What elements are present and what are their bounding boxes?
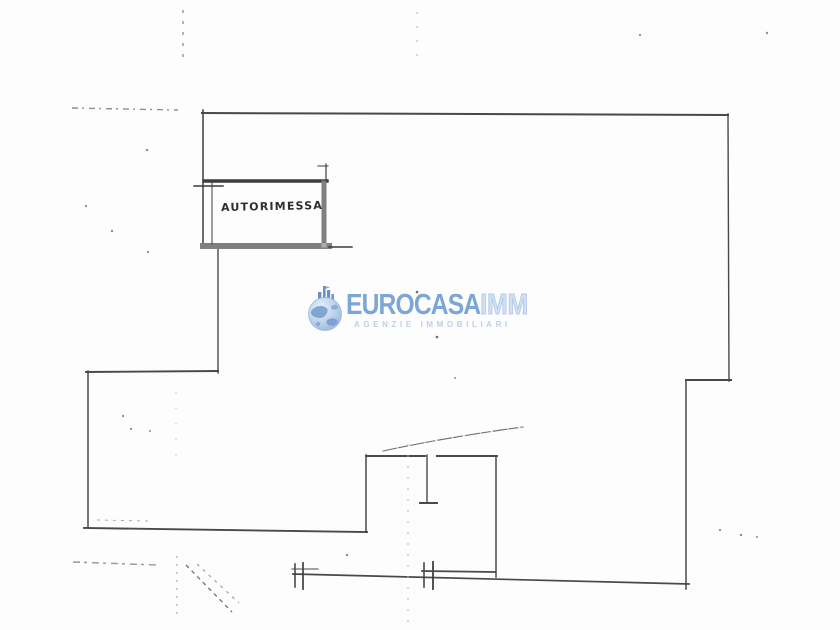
outer-boundary <box>84 110 731 589</box>
brand-text: EUROCASAIMM <box>346 291 528 320</box>
brand-tagline: AGENZIE IMMOBILIARI <box>354 320 511 329</box>
room-label: AUTORIMESSA <box>221 199 323 214</box>
brand-secondary: IMM <box>480 289 528 321</box>
scanned-floor-plan: AUTORIMESSA <box>0 0 840 630</box>
brand-primary: EUROCASA <box>346 289 480 321</box>
globe-icon <box>305 283 347 333</box>
inner-structure <box>292 427 523 589</box>
